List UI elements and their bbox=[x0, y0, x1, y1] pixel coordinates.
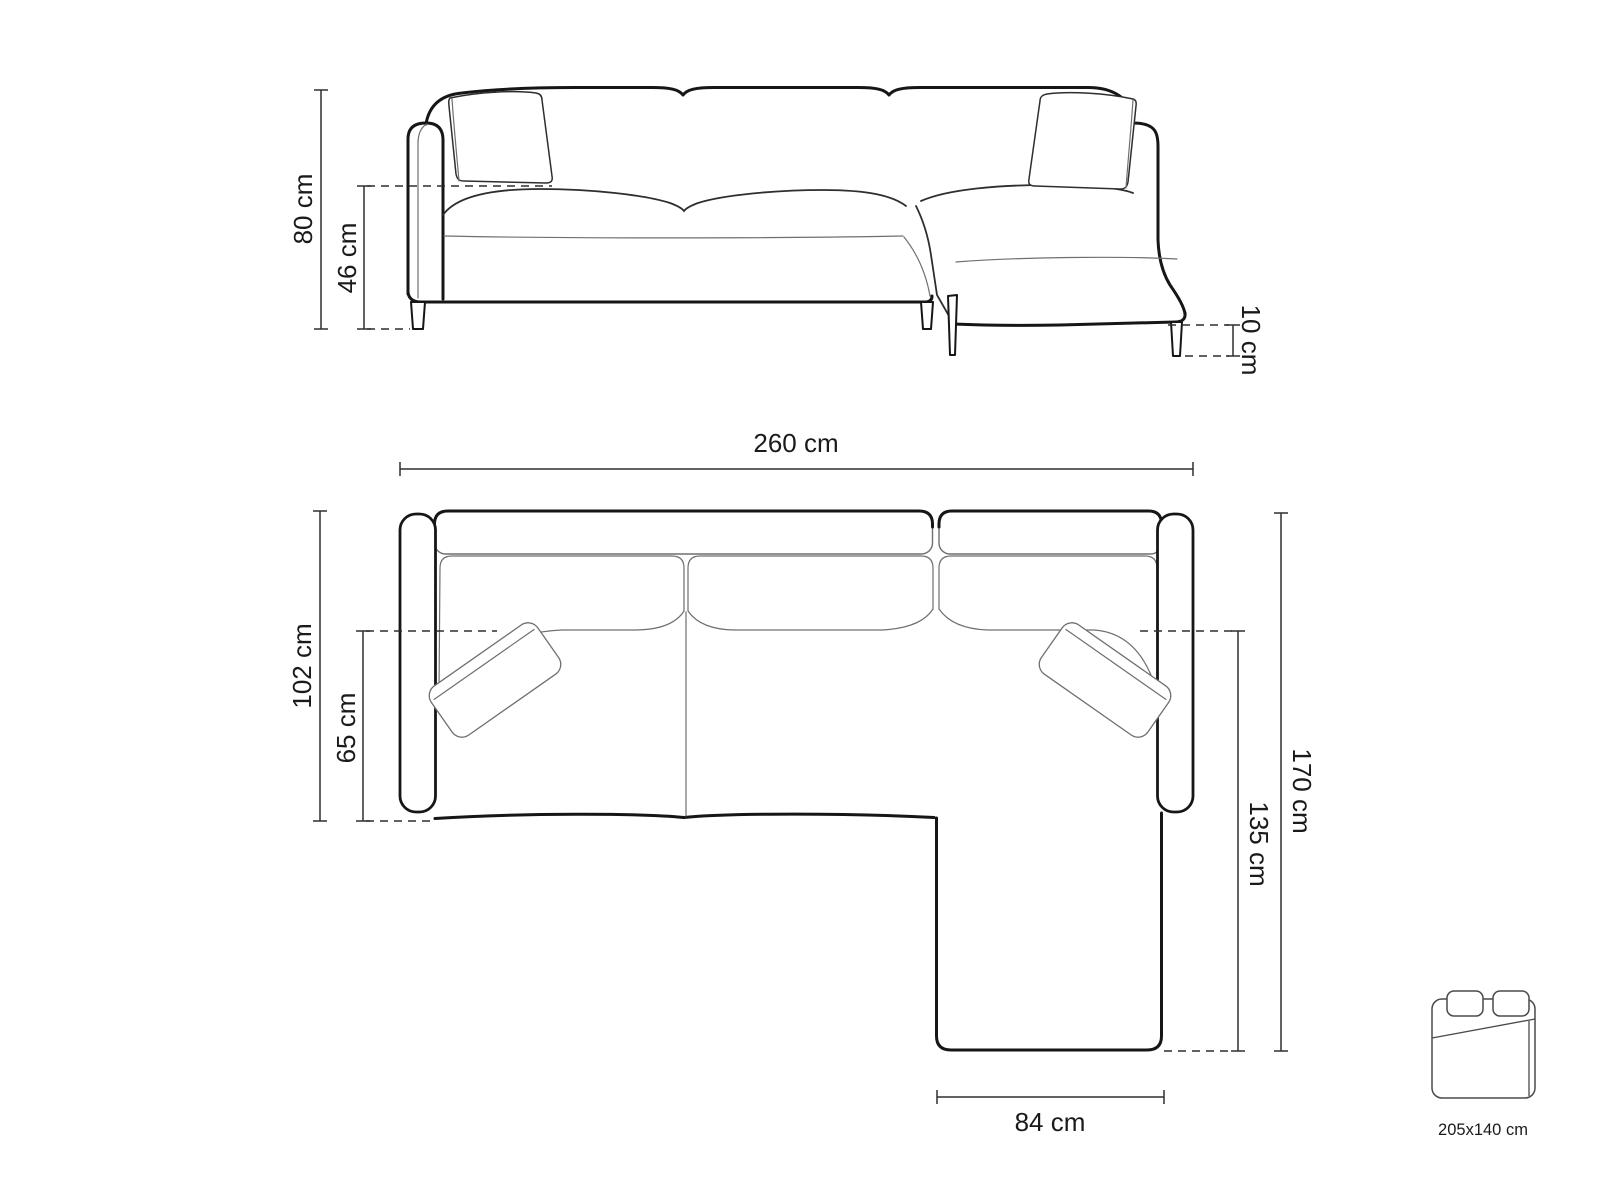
bed-pillow-left-icon bbox=[1447, 991, 1483, 1016]
front-leg-left bbox=[411, 302, 425, 329]
front-chaise-bottom bbox=[953, 313, 1185, 325]
top-view-drawing bbox=[400, 511, 1193, 1050]
dim-seat-height-label: 46 cm bbox=[332, 223, 362, 294]
front-seat-cushions-top bbox=[443, 189, 906, 215]
top-seat-front-edge bbox=[435, 814, 934, 818]
top-back-cushion-2-front bbox=[688, 609, 933, 630]
dim-chaise-length-label: 135 cm bbox=[1244, 801, 1274, 886]
front-right-arm bbox=[1133, 123, 1185, 314]
diagram-svg: 80 cm 46 cm 10 cm bbox=[0, 0, 1600, 1200]
front-left-arm-crease bbox=[418, 124, 427, 298]
front-right-pillow bbox=[1029, 93, 1136, 189]
dim-overall-depth-label: 102 cm bbox=[287, 623, 317, 708]
dim-leg-height-label: 10 cm bbox=[1236, 305, 1266, 376]
top-left-pillow bbox=[425, 618, 566, 742]
front-leg-chaise-right bbox=[1171, 322, 1182, 356]
front-leg-mid bbox=[921, 302, 933, 329]
front-view-drawing bbox=[408, 88, 1185, 357]
front-leg-chaise-left bbox=[948, 295, 957, 355]
top-right-arm bbox=[1158, 514, 1194, 812]
dim-chaise-width-label: 84 cm bbox=[1015, 1107, 1086, 1137]
dim-overall-width-label: 260 cm bbox=[753, 428, 838, 458]
front-left-arm bbox=[408, 123, 443, 299]
front-chaise-cushion-bottom bbox=[956, 257, 1177, 262]
top-left-arm bbox=[400, 514, 436, 812]
dim-overall-height-label: 80 cm bbox=[288, 174, 318, 245]
top-back-band-right bbox=[939, 511, 1162, 554]
top-back-cushion-2 bbox=[688, 556, 933, 611]
bed-pillow-right-icon bbox=[1493, 991, 1529, 1016]
top-back-band-left bbox=[435, 511, 933, 554]
front-base-bottom bbox=[408, 292, 932, 302]
sleeping-area-size-label: 205x140 cm bbox=[1438, 1121, 1528, 1139]
dim-total-length-label: 170 cm bbox=[1287, 748, 1317, 833]
sofa-dimensions-diagram: 80 cm 46 cm 10 cm bbox=[0, 0, 1600, 1200]
dim-seat-depth-label: 65 cm bbox=[331, 693, 361, 764]
top-right-pillow bbox=[1035, 618, 1176, 742]
front-seat-cushions-bottom bbox=[444, 236, 903, 238]
sleeping-area: 205x140 cm bbox=[1432, 991, 1535, 1139]
front-base-right-edge bbox=[904, 237, 930, 296]
front-left-pillow bbox=[449, 92, 552, 183]
top-chaise-outline bbox=[937, 813, 1162, 1050]
